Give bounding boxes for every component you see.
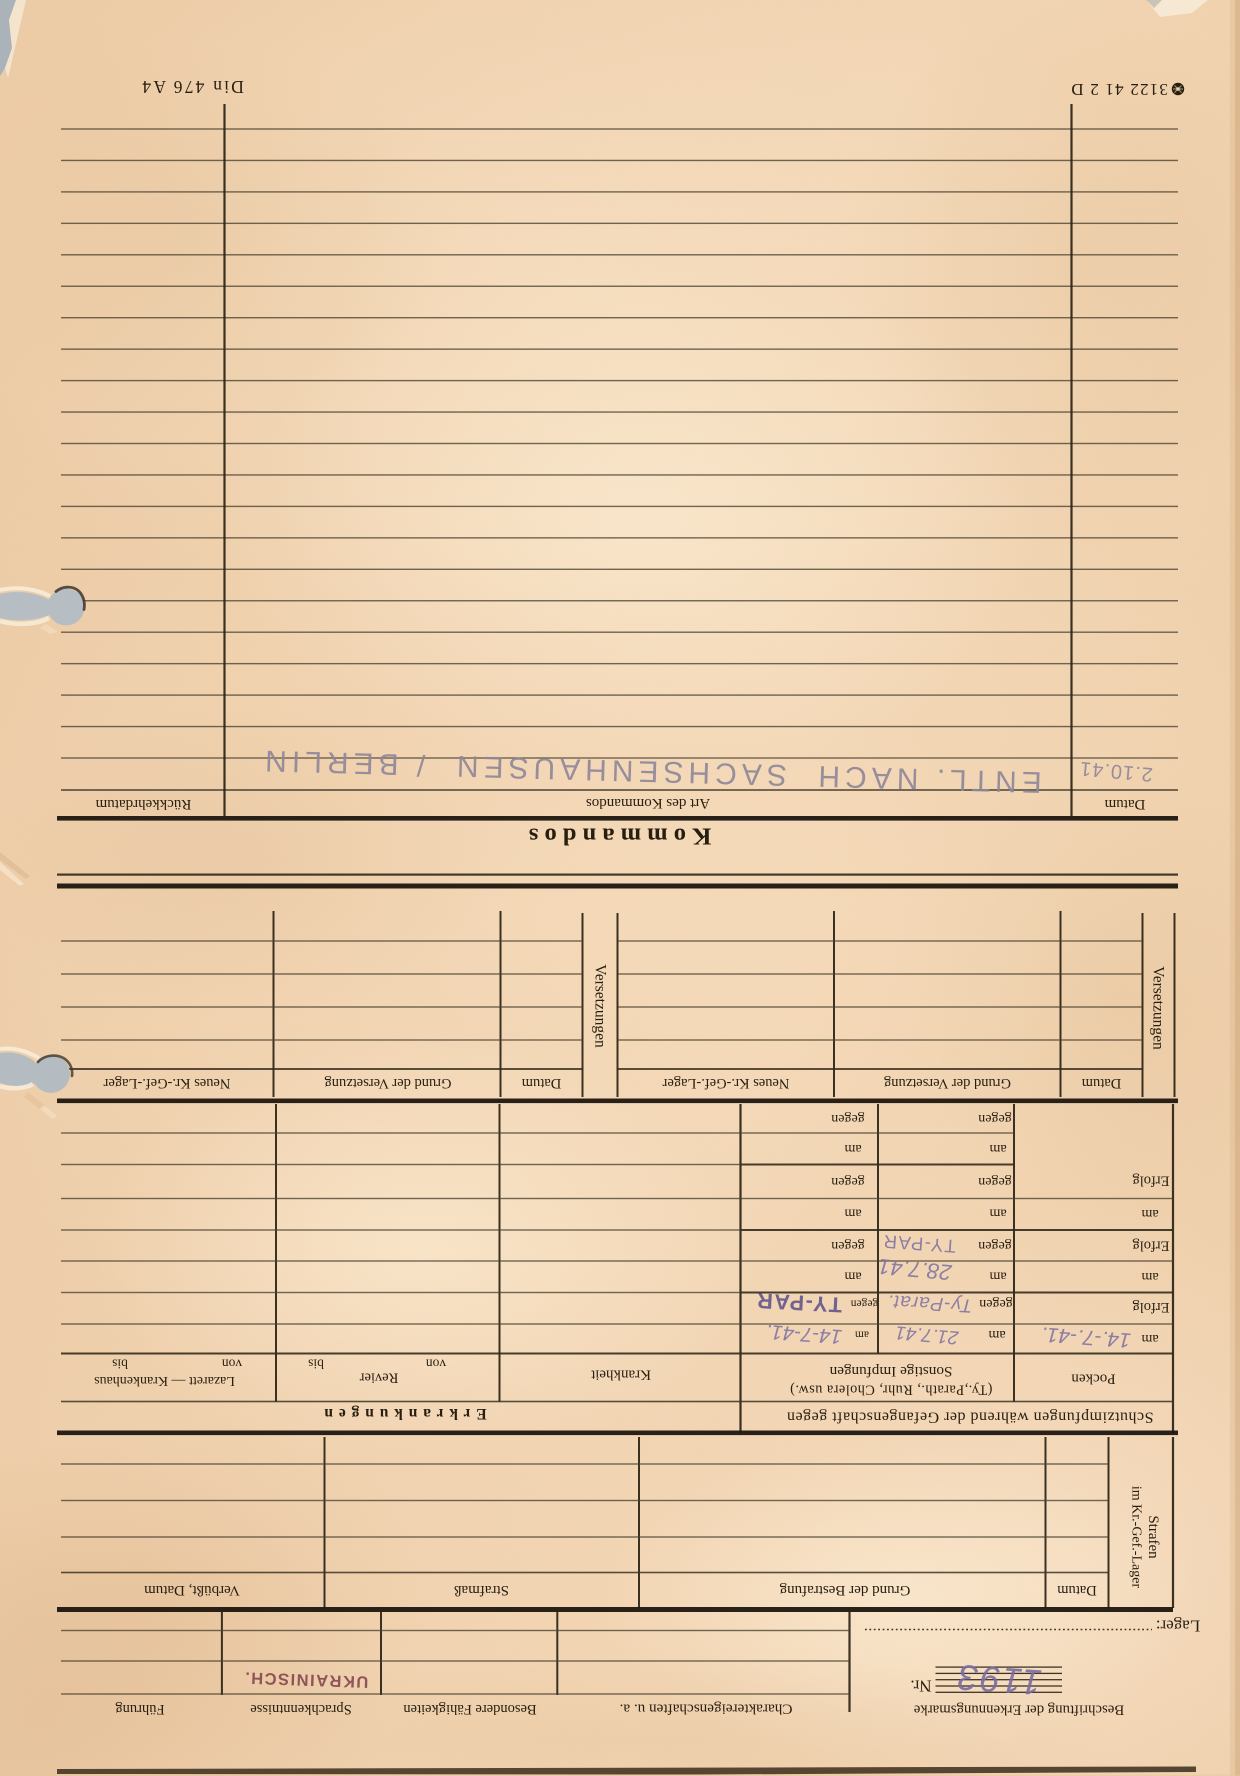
- svg-text:Versetzungen: Versetzungen: [592, 964, 609, 1048]
- svg-text:Pocken: Pocken: [1071, 1371, 1116, 1387]
- svg-text:am: am: [989, 1141, 1006, 1156]
- svg-text:am: am: [855, 1329, 869, 1341]
- svg-text:Strafen: Strafen: [1145, 1515, 1161, 1559]
- svg-text:TY-PAR: TY-PAR: [755, 1288, 842, 1316]
- svg-text:Nr.: Nr.: [910, 1677, 931, 1696]
- svg-text:Sprachkenntnisse: Sprachkenntnisse: [250, 1701, 351, 1717]
- svg-text:Lager:: Lager:: [1156, 1617, 1200, 1636]
- svg-text:Sonstige Impfungen: Sonstige Impfungen: [829, 1363, 952, 1380]
- svg-text:am: am: [988, 1327, 1005, 1342]
- svg-text:am: am: [1141, 1206, 1158, 1221]
- svg-text:Charaktereigenschaften u. a.: Charaktereigenschaften u. a.: [620, 1701, 793, 1718]
- svg-text:Führung: Führung: [115, 1701, 164, 1717]
- svg-text:am: am: [1141, 1331, 1158, 1346]
- svg-text:Din 476 A4: Din 476 A4: [140, 77, 244, 97]
- svg-text:gegen: gegen: [831, 1174, 864, 1189]
- svg-text:Krankheit: Krankheit: [590, 1367, 651, 1383]
- svg-text:Verbüßt, Datum: Verbüßt, Datum: [144, 1582, 240, 1598]
- svg-text:Schutzimpfungen während der Ge: Schutzimpfungen während der Gefangenscha…: [787, 1409, 1154, 1426]
- svg-text:(Ty.,Parath., Ruhr, Cholera us: (Ty.,Parath., Ruhr, Cholera usw.): [790, 1382, 993, 1398]
- svg-text:Rückkehrdatum: Rückkehrdatum: [95, 796, 191, 812]
- svg-text:bis: bis: [112, 1357, 128, 1372]
- svg-text:Ty-Parat.: Ty-Parat.: [886, 1290, 973, 1315]
- svg-text:Neues Kr.-Gef.-Lager: Neues Kr.-Gef.-Lager: [662, 1075, 789, 1091]
- svg-text:1193: 1193: [955, 1657, 1043, 1704]
- svg-text:E r k r a n k u n g e n: E r k r a n k u n g e n: [323, 1405, 486, 1422]
- svg-text:Beschriftung der Erkennungsmar: Beschriftung der Erkennungsmarke: [913, 1702, 1124, 1718]
- svg-text:Grund der Versetzung: Grund der Versetzung: [325, 1075, 452, 1091]
- svg-text:Datum: Datum: [521, 1075, 561, 1091]
- svg-text:Art des Kommandos: Art des Kommandos: [586, 795, 710, 811]
- svg-text:K o m m a n d o s: K o m m a n d o s: [529, 823, 711, 850]
- svg-text:gegen: gegen: [851, 1298, 879, 1310]
- svg-text:am: am: [989, 1206, 1006, 1221]
- svg-text:gegen: gegen: [831, 1238, 864, 1253]
- svg-text:gegen: gegen: [978, 1174, 1011, 1189]
- svg-text:Erfolg: Erfolg: [1132, 1238, 1169, 1254]
- svg-text:Erfolg: Erfolg: [1132, 1299, 1169, 1315]
- svg-text:von: von: [426, 1357, 447, 1372]
- svg-text:gegen: gegen: [831, 1111, 864, 1126]
- svg-text:am: am: [989, 1269, 1006, 1284]
- svg-text:Datum: Datum: [1057, 1582, 1097, 1598]
- svg-text:am: am: [844, 1206, 861, 1221]
- svg-text:Datum: Datum: [1081, 1075, 1121, 1091]
- svg-text:gegen: gegen: [979, 1296, 1012, 1311]
- svg-text:am: am: [844, 1141, 861, 1156]
- svg-text:Erfolg: Erfolg: [1132, 1173, 1169, 1189]
- svg-text:von: von: [222, 1357, 243, 1372]
- svg-text:Neues Kr.-Gef.-Lager: Neues Kr.-Gef.-Lager: [103, 1075, 230, 1091]
- svg-text:Lazarett — Krankenhaus: Lazarett — Krankenhaus: [94, 1373, 235, 1388]
- svg-text:bis: bis: [308, 1357, 324, 1372]
- svg-text:Grund der Versetzung: Grund der Versetzung: [884, 1075, 1011, 1091]
- svg-text:Grund der Bestrafung: Grund der Bestrafung: [779, 1582, 910, 1598]
- svg-text:3122 41 2 D: 3122 41 2 D: [1070, 80, 1168, 99]
- svg-text:Revier: Revier: [360, 1370, 399, 1386]
- svg-text:Datum: Datum: [1104, 796, 1145, 812]
- svg-text:im Kr.-Gef.-Lager: im Kr.-Gef.-Lager: [1129, 1486, 1144, 1589]
- svg-text:am: am: [844, 1269, 861, 1284]
- svg-text:gegen: gegen: [978, 1111, 1011, 1126]
- svg-text:Besondere Fähigkeiten: Besondere Fähigkeiten: [403, 1701, 537, 1717]
- svg-text:Versetzungen: Versetzungen: [1150, 966, 1167, 1050]
- svg-text:Strafmaß: Strafmaß: [454, 1582, 509, 1598]
- svg-text:am: am: [1141, 1269, 1158, 1284]
- svg-text:gegen: gegen: [978, 1238, 1011, 1253]
